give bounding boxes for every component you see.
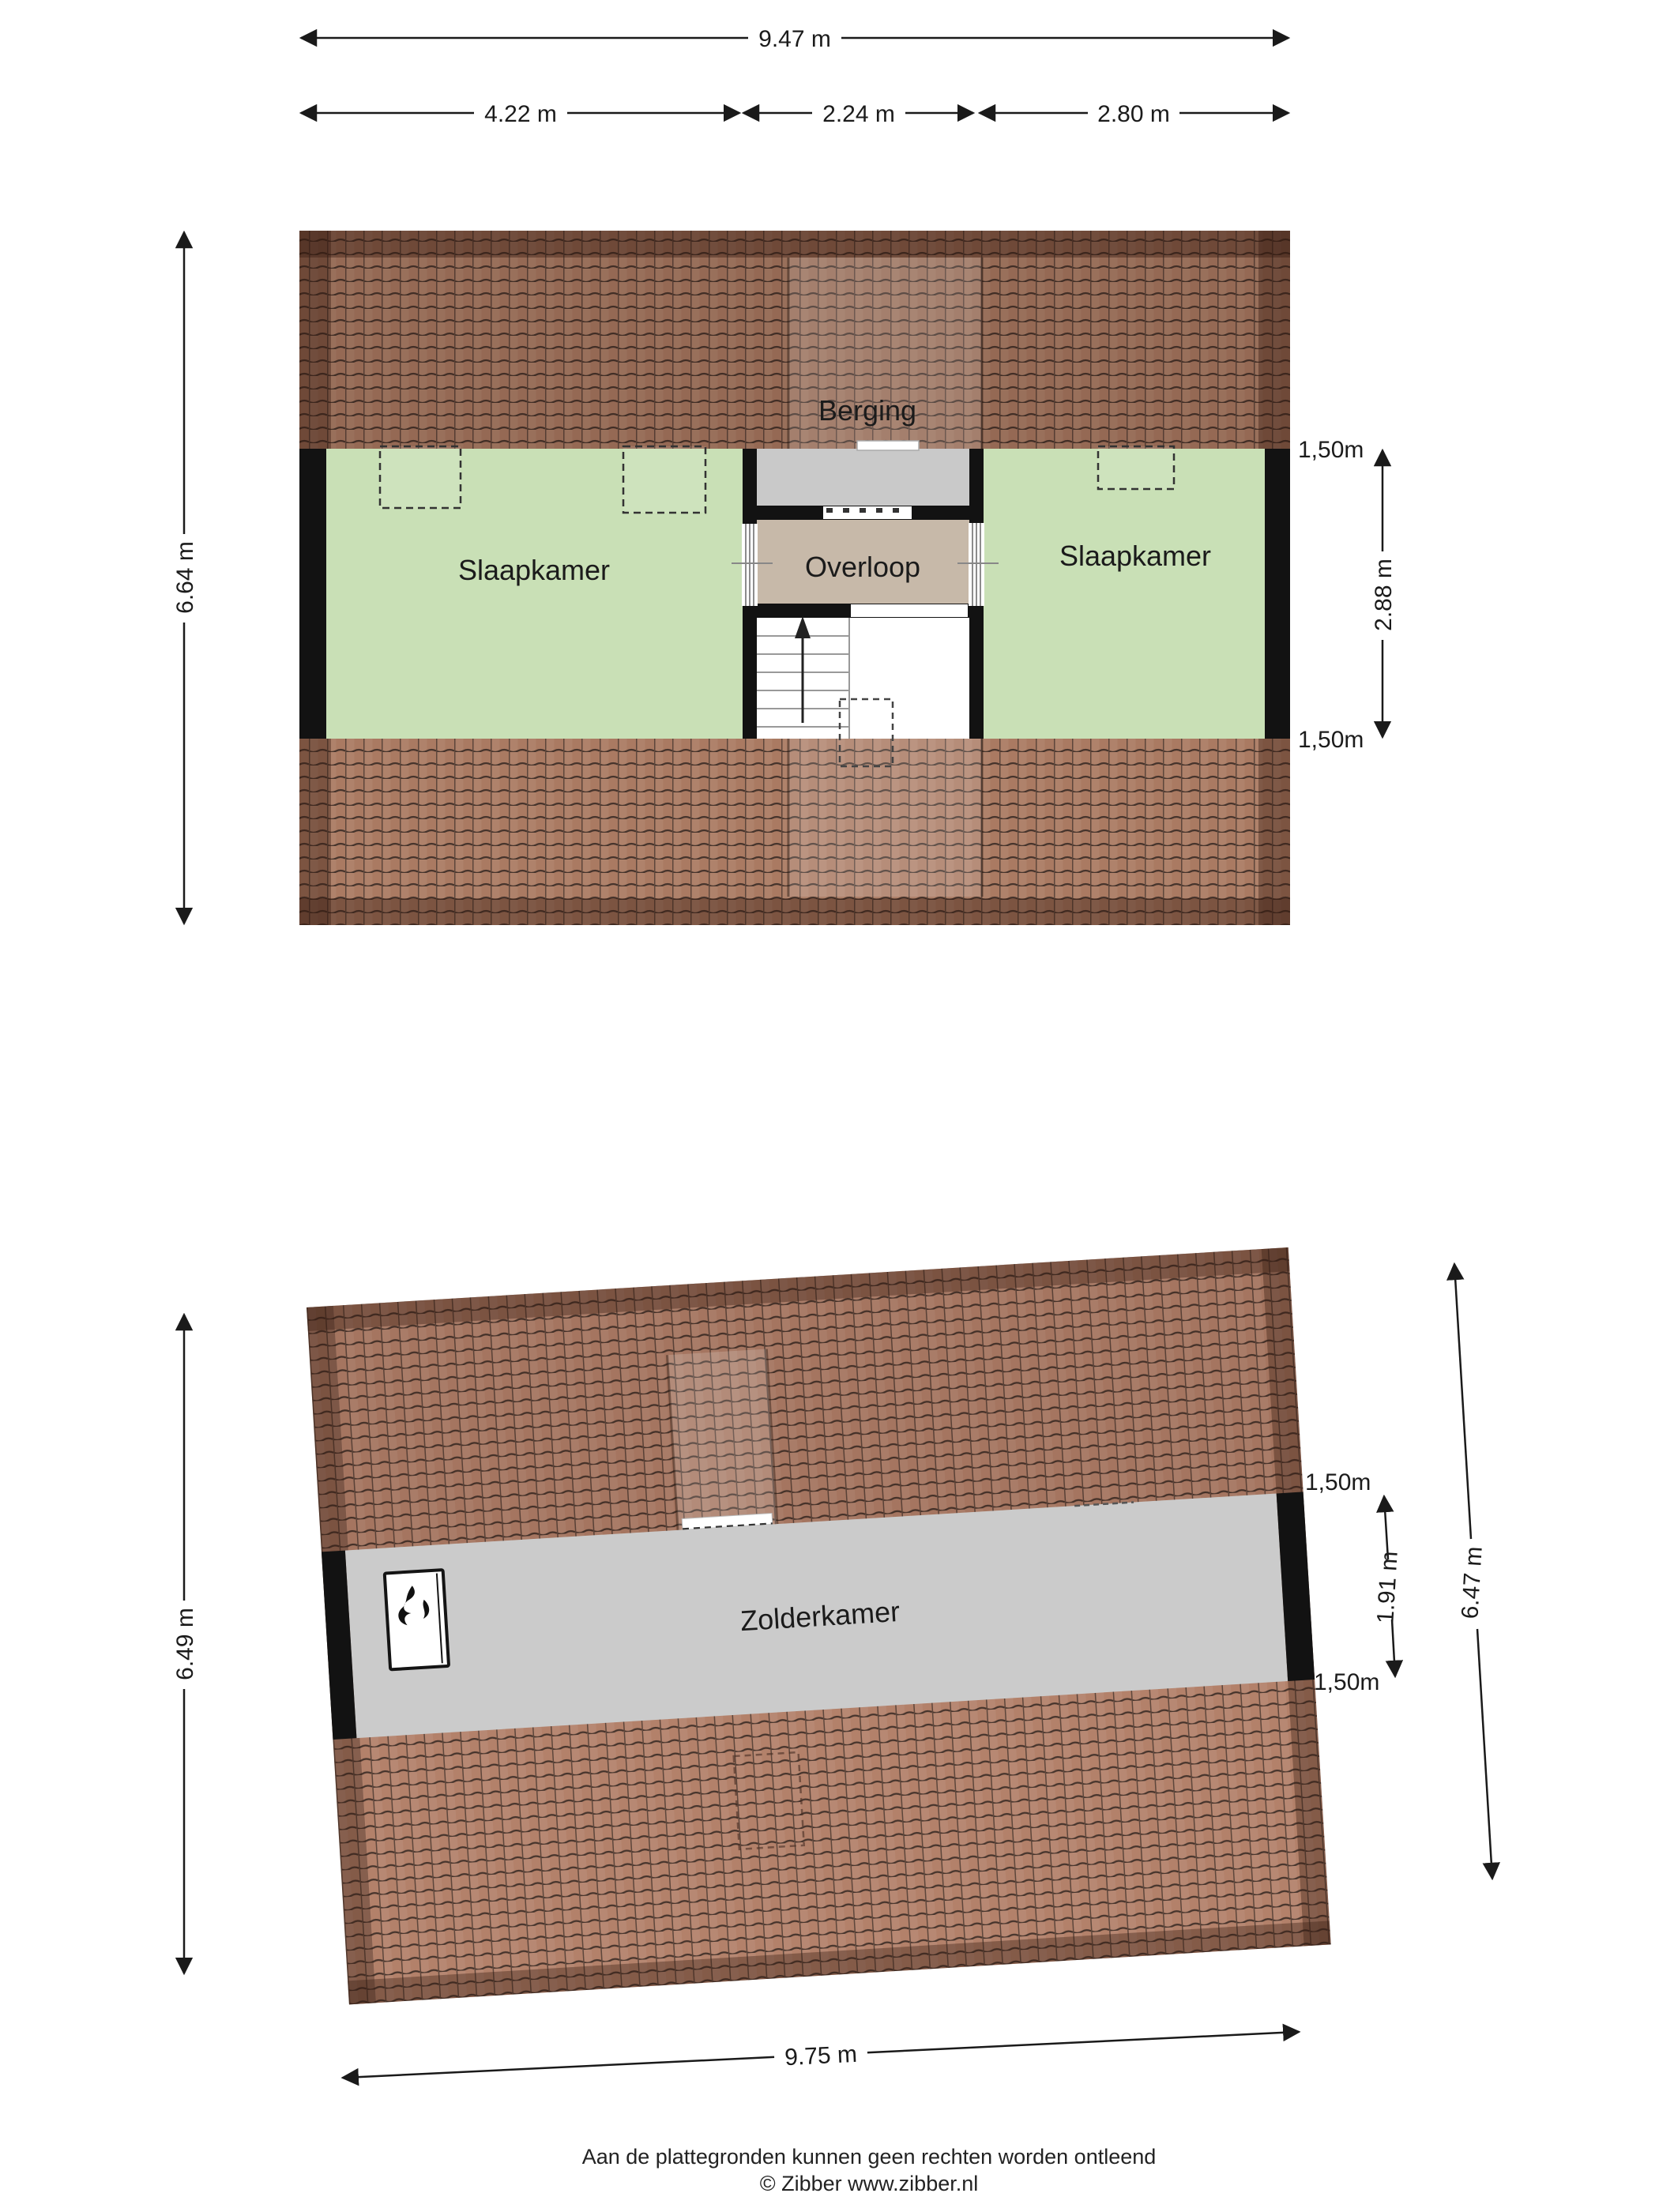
dim-attic-room-depth: 2.88 m [1371, 559, 1397, 631]
roof-edge-bottom [299, 898, 1290, 925]
dim-attic-width-left: 4.22 m [484, 101, 557, 127]
dim-attic-width-center: 2.24 m [822, 101, 895, 127]
floor-plan-attic: Slaapkamer Berging Overloop Slaapkamer [299, 231, 1290, 925]
floorplan-canvas: Slaapkamer Berging Overloop Slaapkamer 9… [0, 0, 1659, 2212]
dim-loft-height-left: 6.49 m [172, 1608, 198, 1680]
footer: Aan de plattegronden kunnen geen rechten… [582, 2145, 1157, 2195]
label-slaapkamer-right: Slaapkamer [1059, 540, 1211, 572]
dim-attic-width-right: 2.80 m [1097, 101, 1170, 127]
label-berging: Berging [818, 394, 916, 427]
floor-plan-loft: Zolderkamer [307, 1247, 1331, 2004]
dim-loft-room-depth: 1.91 m [1372, 1551, 1403, 1625]
room-berging [757, 449, 969, 506]
loft-knee-wall-top: 1,50m [1305, 1469, 1371, 1495]
dormer-bottom [788, 739, 982, 897]
skylight-left-2 [623, 446, 705, 513]
room-slaapkamer-right [984, 449, 1265, 739]
skylight-right [1098, 446, 1174, 489]
opening-overloop-stairs [851, 604, 968, 617]
threshold-berging [857, 441, 919, 450]
door-berging [823, 506, 912, 519]
loft-knee-wall-bottom: 1,50m [1314, 1669, 1379, 1695]
dim-loft-height-right: 6.47 m [1457, 1546, 1488, 1620]
wall-right [1265, 449, 1290, 739]
footer-credit: © Zibber www.zibber.nl [760, 2172, 979, 2195]
label-overloop: Overloop [805, 551, 920, 583]
loft-dormer [668, 1349, 777, 1530]
dim-attic-height-total: 6.64 m [172, 541, 198, 614]
dim-loft-width-total: 9.75 m [784, 2041, 857, 2071]
footer-disclaimer: Aan de plattegronden kunnen geen rechten… [582, 2145, 1157, 2169]
skylight-left-1 [380, 446, 461, 508]
wall-left [299, 449, 326, 739]
attic-knee-wall-bottom: 1,50m [1298, 727, 1364, 753]
cv-boiler [385, 1570, 449, 1669]
dim-attic-width-total: 9.47 m [758, 26, 831, 52]
label-slaapkamer-left: Slaapkamer [458, 554, 610, 586]
attic-knee-wall-top: 1,50m [1298, 437, 1364, 463]
